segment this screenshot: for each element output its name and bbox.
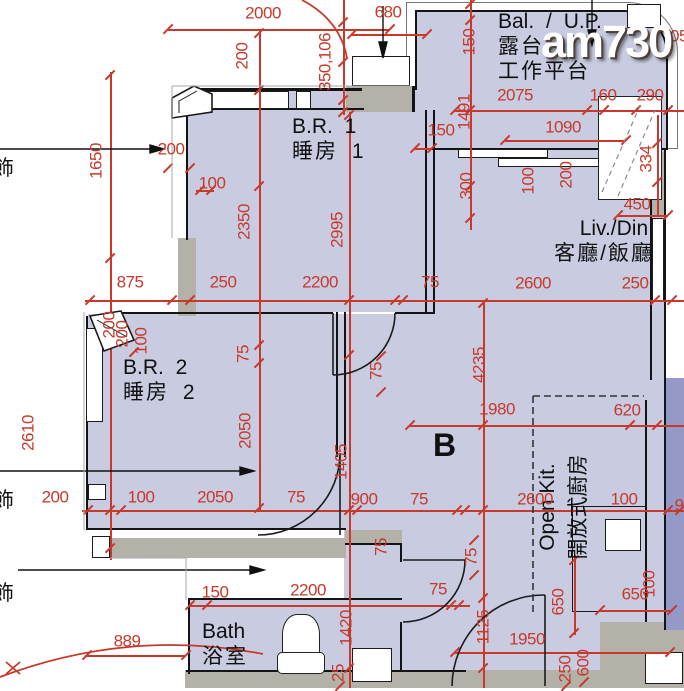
plan-overlay-svg (0, 0, 684, 688)
dimension-label: 2200 (302, 274, 338, 291)
unit-label: B (433, 427, 456, 464)
dimension-label: 75 (421, 274, 439, 291)
dimension-label: 100 (199, 175, 226, 192)
dimension-label: 650 (550, 589, 567, 616)
dimension-label: 680 (375, 4, 402, 21)
dimension-label: 75 (235, 345, 252, 363)
clipped-annotation-text: 飾 (0, 484, 14, 514)
dimension-label: 2050 (237, 413, 254, 449)
floorplan-page: { "watermark": { "text": "am730" }, "uni… (0, 0, 684, 688)
dimension-label: 2075 (497, 87, 533, 104)
dimension-label: 2350 (236, 204, 253, 240)
dimension-label: 75 (463, 548, 480, 566)
dimension-label: 1125 (475, 610, 492, 645)
dimension-label: 2200 (290, 582, 326, 599)
dimension-label: 334 (638, 146, 655, 173)
dimension-label: 900 (351, 491, 378, 508)
room-label-br2: B.R. 2 睡房 2 (123, 356, 197, 405)
room-label-openkit-zh: 開放式廚房 (562, 455, 592, 560)
dimension-label: 200 (114, 321, 131, 348)
dimension-label: 600 (575, 650, 592, 677)
dimension-label: 75 (429, 581, 447, 598)
dimension-label: 100 (520, 168, 537, 195)
clipped-annotation-text: 飾 (0, 577, 14, 607)
dimension-label: 450 (624, 196, 651, 213)
dimension-label: 1980 (479, 401, 515, 418)
dimension-label: 250 (622, 275, 649, 292)
dimension-label: 620 (614, 402, 641, 419)
dimension-label: 25 (330, 664, 347, 682)
dimension-label: 300 (458, 173, 475, 200)
dimension-label: 75 (368, 362, 385, 380)
dimension-label: 200 (558, 162, 575, 189)
watermark-logo: am730 (541, 16, 671, 68)
dimension-label: 100 (128, 489, 155, 506)
dimension-label: 2995 (329, 212, 346, 248)
dimension-label: 4235 (471, 347, 488, 383)
dimension-label: 2000 (245, 5, 281, 22)
dimension-label: 2050 (197, 489, 233, 506)
dimension-label: 160 (590, 87, 617, 104)
dimension-label: 1420 (338, 610, 355, 646)
room-label-livdin: Liv./Din. 客廳/飯廳 (554, 217, 654, 266)
dimension-label: 290 (637, 87, 664, 104)
dimension-label: 875 (117, 274, 144, 291)
dimension-label: 75 (287, 489, 305, 506)
dimension-label: 350,106 (317, 33, 334, 91)
dimension-label: 05 (670, 28, 684, 45)
dimension-label: 2600 (515, 275, 551, 292)
bay-corner-br1 (172, 86, 212, 118)
dimension-label: 100 (133, 328, 150, 355)
dimension-label: 889 (114, 633, 141, 650)
dimension-label: 2600 (517, 491, 553, 508)
dimension-label: 1650 (88, 143, 105, 179)
dimension-label: 1491 (456, 94, 473, 130)
room-label-bath: Bath 浴室 (202, 620, 248, 669)
room-label-br1: B.R. 1 睡房 1 (292, 115, 366, 164)
dimension-label: 200 (42, 489, 69, 506)
dimension-label: 1405 (333, 444, 350, 480)
dimension-label: 1090 (545, 119, 581, 136)
dimension-label: 75 (410, 491, 428, 508)
dimension-label: 250 (210, 274, 237, 291)
clipped-annotation-text: 飾 (0, 152, 14, 182)
dimension-label: 650 (622, 586, 649, 603)
dimension-label: 150 (461, 29, 478, 56)
dimension-label: 150 (428, 122, 455, 139)
dimension-label: 250 (557, 656, 574, 683)
dimension-label: 1950 (509, 631, 545, 648)
dimension-label: 100 (611, 491, 638, 508)
dimension-label: 200 (234, 43, 251, 70)
dimension-label: 2610 (20, 415, 37, 451)
dimension-label: 75 (373, 538, 390, 556)
dimension-label: 200 (158, 141, 185, 158)
dimension-label: 150 (202, 584, 229, 601)
dimension-label: 9 (675, 497, 684, 514)
